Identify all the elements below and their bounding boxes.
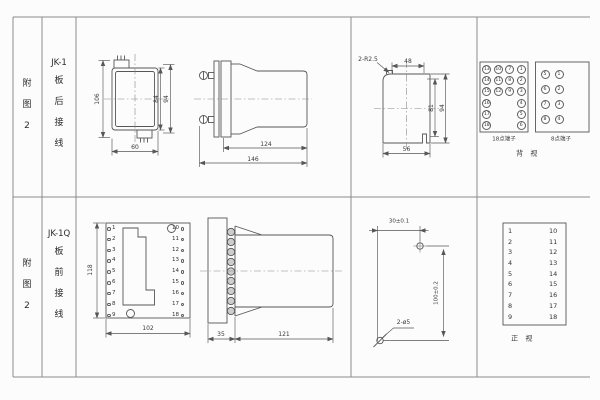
terminal-number: 7: [508, 292, 512, 299]
terminal-circle: 4: [555, 115, 564, 124]
jk1-front-view: [99, 54, 175, 156]
terminal-circle: 10: [494, 65, 503, 74]
jk1q-side-view: [200, 218, 342, 343]
row2-model-cell: JK-1Q 板前接线: [43, 229, 75, 326]
terminal-circle: 7: [505, 65, 514, 74]
terminal-number: 16: [549, 292, 557, 299]
terminal-circle: 8: [541, 115, 550, 124]
dim-body-length-label: 121: [278, 332, 289, 338]
socket-terminal: 14: [172, 269, 184, 275]
wiring-type: 板后接线: [53, 71, 65, 155]
dim-cutout-inner-label: 81: [429, 104, 435, 112]
terminal-circle: 9: [505, 87, 514, 96]
dim-cutout-outer-label: 94: [440, 104, 446, 112]
terminal-circle: 2: [517, 76, 526, 85]
row1-model-cell: JK-1 板后接线: [43, 58, 75, 155]
socket-terminal: 1: [107, 226, 116, 232]
terminal-circle: 7: [541, 100, 550, 109]
socket-terminal: 13: [172, 258, 184, 264]
terminal-number: 6: [508, 281, 512, 288]
terminal-number: 17: [549, 303, 557, 310]
socket-terminal: 2: [107, 237, 116, 243]
socket-terminal: 15: [172, 280, 184, 286]
socket-terminal: 7: [107, 291, 116, 297]
socket-terminal: 18: [172, 313, 184, 319]
dim-cutout-bottom-label: 56: [403, 147, 411, 153]
model-name: JK-1: [51, 58, 67, 68]
terminal-number: 13: [549, 260, 557, 267]
dim-total-height-label: 106: [95, 93, 101, 104]
terminal-number: 11: [549, 239, 557, 246]
terminal-circle: 15: [482, 87, 491, 96]
terminal-circle: 13: [482, 65, 491, 74]
dim-cutout-top-label: 48: [404, 59, 412, 65]
corner-radius-label: 2-R2.5: [358, 57, 378, 63]
technical-drawing-sheet: 附图2 JK-1 板后接线 附图2 JK-1Q 板前接线 106 84 94 6…: [0, 0, 600, 400]
row1-figure-label: 附图2: [16, 74, 38, 137]
socket-terminal: 9: [107, 313, 116, 319]
dim-total-length-label: 146: [247, 157, 258, 163]
dim-hole-pitch-x-label: 30±0.1: [389, 219, 409, 225]
terminal-circle: 14: [482, 76, 491, 85]
terminal-circle: 11: [494, 76, 503, 85]
dim-flange-depth-label: 35: [217, 332, 225, 338]
socket-terminal: 6: [107, 280, 116, 286]
dim-socket-height-label: 118: [88, 264, 94, 275]
terminal-circle: 16: [482, 99, 491, 108]
terminal-table-left-column: 123456789: [508, 228, 512, 320]
terminal-circle: 5: [541, 70, 550, 79]
socket-terminal: 16: [172, 291, 184, 297]
terminal-number: 10: [549, 228, 557, 235]
terminal-number: 3: [508, 249, 512, 256]
jk1-side-view: [194, 61, 312, 167]
socket-terminal: 10: [172, 226, 184, 232]
terminal-number: 14: [549, 271, 557, 278]
terminal-table-right-column: 101112131415161718: [549, 228, 557, 320]
terminal-circle: 17: [482, 110, 491, 119]
terminal-18-label: 18点端子: [492, 137, 516, 143]
front-view-caption: 正 视: [511, 336, 535, 343]
terminal-grid-8: 51627384: [538, 67, 566, 127]
drawing-lines: [0, 0, 600, 400]
terminal-number: 4: [508, 260, 512, 267]
socket-terminals-right: 101112131415161718: [172, 226, 184, 318]
socket-terminals-left: 123456789: [107, 226, 116, 318]
dim-flange-height-label: 94: [164, 95, 170, 103]
terminal-number: 5: [508, 271, 512, 278]
socket-terminal: 5: [107, 269, 116, 275]
terminal-number: 1: [508, 228, 512, 235]
terminal-number: 8: [508, 303, 512, 310]
terminal-circle: 6: [541, 85, 550, 94]
terminal-number: 9: [508, 314, 512, 321]
terminal-circle: 8: [505, 76, 514, 85]
terminal-number: 18: [549, 314, 557, 321]
dim-body-length-label: 124: [260, 142, 271, 148]
row2-figure-label: 附图2: [16, 254, 38, 317]
terminal-number: 15: [549, 281, 557, 288]
model-name: JK-1Q: [48, 229, 70, 239]
terminal-circle: 12: [494, 87, 503, 96]
terminal-grid-18: 131071141182151293164175186: [481, 64, 527, 131]
terminal-circle: 18: [482, 121, 491, 130]
wiring-type: 板前接线: [53, 242, 65, 326]
dim-width-label: 60: [131, 145, 139, 151]
terminal-circle: 3: [555, 100, 564, 109]
terminal-circle: 6: [517, 121, 526, 130]
socket-terminal: 11: [172, 237, 184, 243]
figure-number: 附图2: [21, 254, 33, 317]
socket-terminal: 12: [172, 248, 184, 254]
hole-spec-label: 2-ø5: [397, 320, 410, 326]
terminal-circle: 1: [517, 65, 526, 74]
terminal-circle: 5: [517, 110, 526, 119]
terminal-number: 2: [508, 239, 512, 246]
socket-terminal: 17: [172, 302, 184, 308]
terminal-circle: 4: [517, 99, 526, 108]
socket-terminal: 4: [107, 258, 116, 264]
rear-view-caption: 背 视: [516, 151, 540, 158]
socket-terminal: 8: [107, 302, 116, 308]
terminal-circle: 1: [555, 70, 564, 79]
dim-socket-width-label: 102: [142, 326, 153, 332]
figure-number: 附图2: [21, 74, 33, 137]
terminal-circle: 3: [517, 87, 526, 96]
dim-body-height-label: 84: [154, 95, 160, 103]
terminal-8-label: 8点端子: [551, 137, 571, 143]
terminal-number: 12: [549, 249, 557, 256]
dim-hole-pitch-y-label: 100±0.2: [434, 281, 440, 305]
terminal-circle: 2: [555, 85, 564, 94]
socket-terminal: 3: [107, 248, 116, 254]
